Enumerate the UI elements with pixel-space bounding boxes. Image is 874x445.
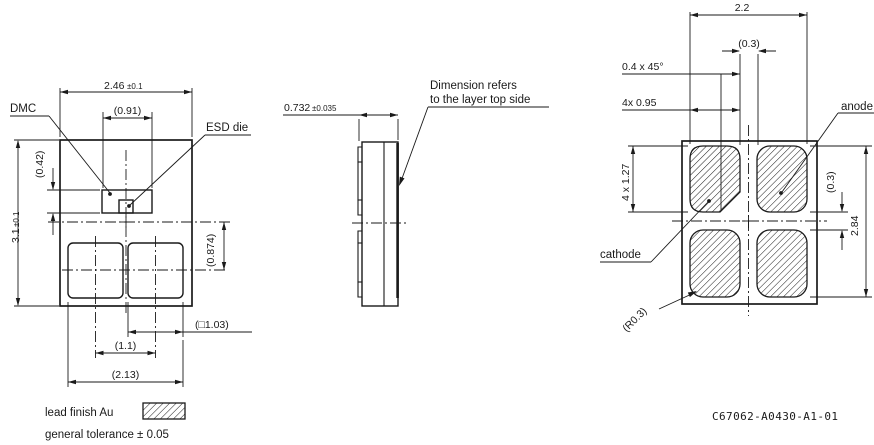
- dim-label-dmc-height: (0.42): [34, 151, 46, 178]
- dim-label-pad-pitch: (1.1): [115, 340, 137, 352]
- note-leader-arrow: [399, 177, 405, 186]
- dmc-callout: DMC: [10, 103, 112, 196]
- dim-label-pad-gap-h: (0.3): [738, 38, 760, 50]
- dim-pad-width: 4x 0.95: [622, 97, 740, 112]
- note-leader-line: [400, 107, 428, 184]
- esd-callout: ESD die: [127, 122, 251, 208]
- side-body: [362, 142, 398, 306]
- dim-dmc-width: (0.91): [103, 105, 152, 188]
- dmc-leader-line: [49, 116, 110, 193]
- dim-pad-gap-vertical: (0.3): [810, 171, 848, 250]
- dim-label-pad-height: 4 x 1.27: [620, 163, 632, 201]
- pad-bottom-right: [757, 230, 807, 297]
- dim-label-corner-radius: (R0.3): [620, 305, 649, 334]
- hatch-swatch: [143, 403, 185, 419]
- cathode-label: cathode: [600, 249, 641, 261]
- dmc-leader-dot: [108, 192, 112, 196]
- dim-pad-span-vertical: 2.84: [810, 146, 872, 297]
- dim-label-pad-gap-v: (0.3): [825, 171, 837, 193]
- esd-leader-dot: [127, 204, 131, 208]
- dim-pad-square: (□1.03): [128, 302, 252, 337]
- dim-label-package-height: 3.1: [10, 228, 22, 243]
- anode-label: anode: [841, 101, 873, 113]
- lead-finish-label: lead finish Au: [45, 407, 113, 419]
- dim-label-package-width: 2.46: [104, 80, 125, 92]
- dim-thickness: 0.732 ±0.035: [283, 102, 398, 141]
- dim-label-thickness: 0.732: [284, 102, 310, 114]
- pad-cathode-top-left: [690, 146, 740, 212]
- dim-label-pad-span-v: 2.84: [849, 215, 861, 236]
- note-line1: Dimension refers: [430, 80, 517, 92]
- note-callout: Dimension refers to the layer top side: [399, 80, 549, 186]
- general-tolerance-label: general tolerance ± 0.05: [45, 429, 169, 441]
- drawing-canvas: 2.46 ±0.1 (0.91) 3.1 ±0.1 (0.42): [0, 0, 874, 445]
- dim-tol-package-height: ±0.1: [12, 211, 21, 227]
- doc-number: C67062-A0430-A1-01: [712, 410, 838, 423]
- dim-pad-height: 4 x 1.27: [620, 146, 688, 212]
- dim-pad-gap-horizontal: (0.3): [722, 38, 776, 145]
- dim-tol-thickness: ±0.035: [312, 104, 337, 113]
- dim-pad-offset: (0.874): [205, 222, 226, 270]
- front-view: 2.46 ±0.1 (0.91) 3.1 ±0.1 (0.42): [10, 80, 252, 387]
- cathode-leader-dot: [707, 199, 711, 203]
- dim-tol-package-width: ±0.1: [127, 82, 143, 91]
- dim-label-chamfer: 0.4 x 45°: [622, 61, 664, 73]
- dim-pad-span-horizontal: 2.2: [690, 2, 807, 144]
- pad-anode-top-right: [757, 146, 807, 212]
- dim-pad-pitch: (1.1): [96, 340, 156, 355]
- bottom-view: 2.2 (0.3) 0.4 x 45° 4x 0.95 4 x 1.2: [600, 2, 874, 334]
- dim-label-pad-span-h: 2.2: [735, 2, 750, 14]
- dim-label-pad-span: (2.13): [112, 369, 139, 381]
- dim-label-pad-offset: (0.874): [205, 234, 217, 267]
- dim-label-pad-width: 4x 0.95: [622, 97, 657, 109]
- esd-die-label: ESD die: [206, 122, 248, 134]
- technical-drawing-page: 2.46 ±0.1 (0.91) 3.1 ±0.1 (0.42): [0, 0, 874, 445]
- anode-leader-dot: [779, 191, 783, 195]
- note-line2: to the layer top side: [430, 94, 530, 106]
- dim-label-pad-square: (□1.03): [195, 319, 229, 331]
- dmc-label: DMC: [10, 103, 36, 115]
- pad-bottom-left: [690, 230, 740, 297]
- side-view: 0.732 ±0.035 Dimension refers to the lay…: [283, 80, 549, 306]
- legend: lead finish Au general tolerance ± 0.05: [45, 403, 185, 441]
- corner-radius-callout: (R0.3): [620, 291, 697, 334]
- dim-label-dmc-width: (0.91): [114, 105, 141, 117]
- esd-leader-line: [130, 135, 205, 205]
